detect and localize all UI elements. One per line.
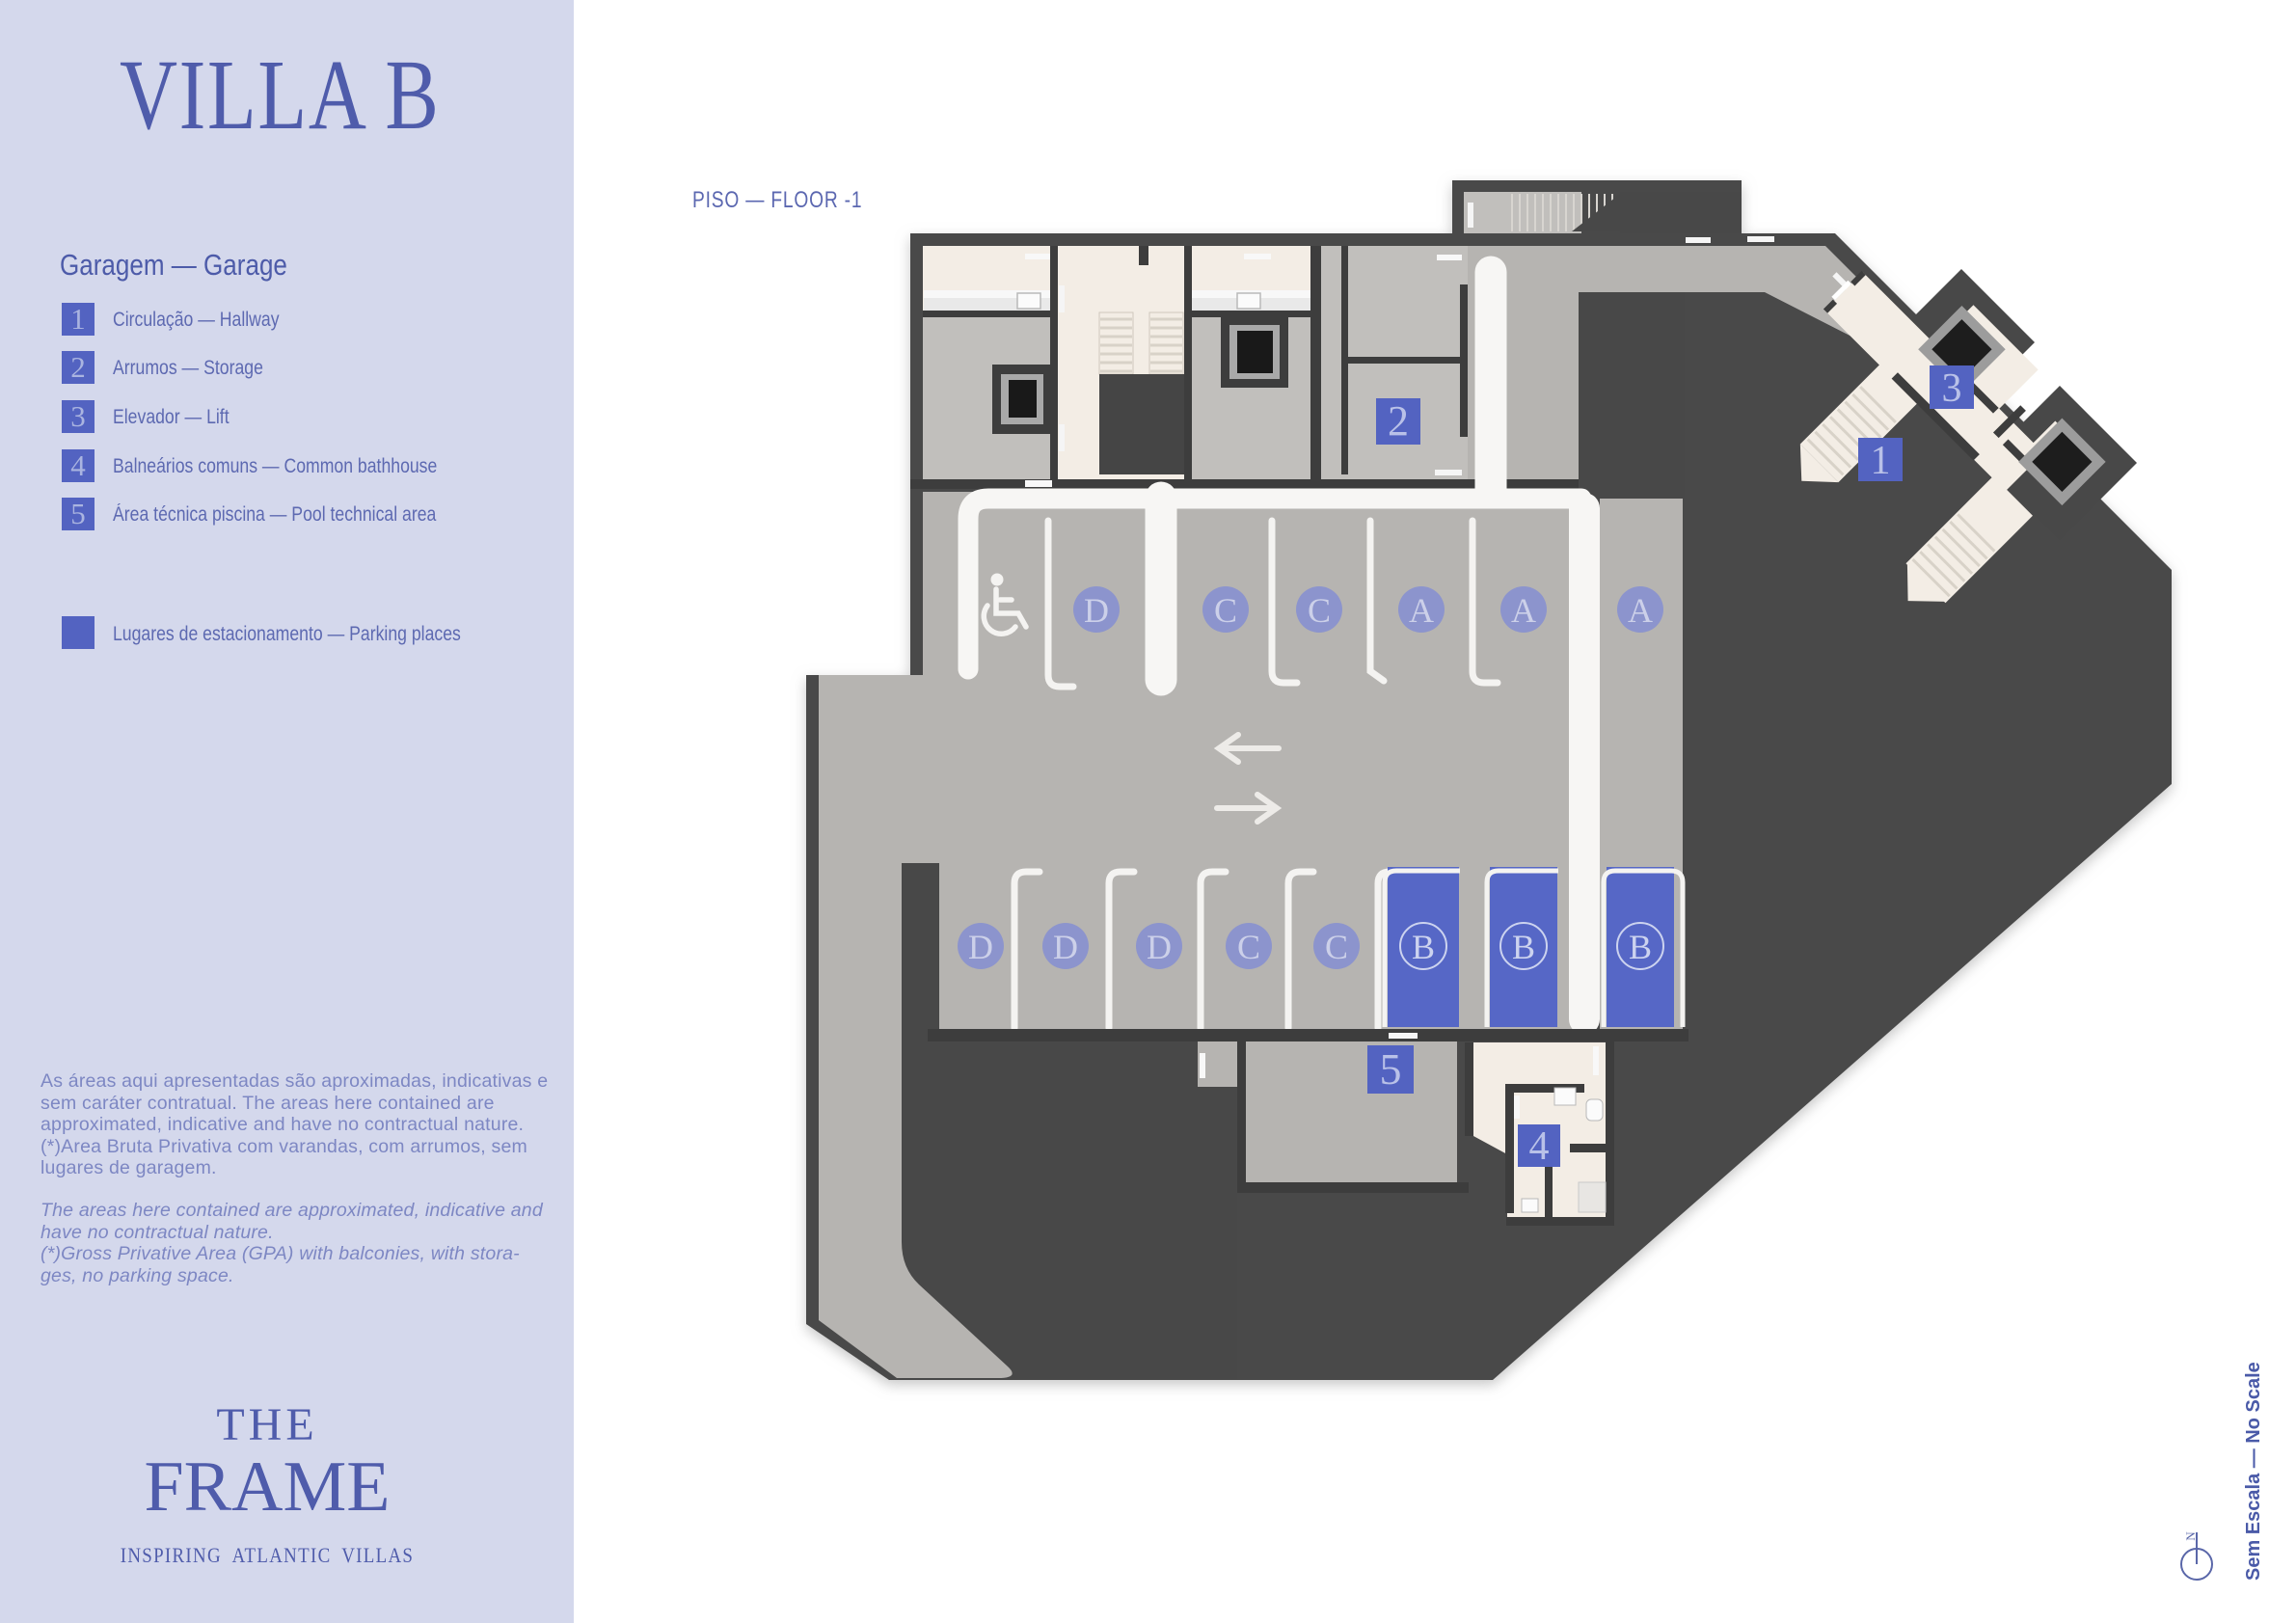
svg-text:C: C (1237, 928, 1260, 966)
svg-text:A: A (1628, 591, 1653, 630)
svg-text:4: 4 (1529, 1124, 1550, 1169)
svg-text:C: C (1325, 928, 1348, 966)
svg-text:1: 1 (1871, 439, 1891, 483)
svg-text:D: D (968, 928, 993, 966)
svg-text:N: N (2183, 1531, 2198, 1541)
svg-text:C: C (1214, 591, 1237, 630)
svg-text:D: D (1147, 928, 1172, 966)
svg-text:B: B (1412, 928, 1435, 966)
svg-text:B: B (1629, 928, 1652, 966)
svg-text:5: 5 (1380, 1044, 1402, 1094)
svg-text:A: A (1511, 591, 1536, 630)
svg-text:D: D (1053, 928, 1078, 966)
svg-text:A: A (1409, 591, 1434, 630)
svg-text:D: D (1084, 591, 1109, 630)
svg-text:3: 3 (1942, 366, 1962, 411)
svg-text:2: 2 (1388, 397, 1409, 445)
svg-text:B: B (1512, 928, 1535, 966)
svg-text:C: C (1308, 591, 1331, 630)
